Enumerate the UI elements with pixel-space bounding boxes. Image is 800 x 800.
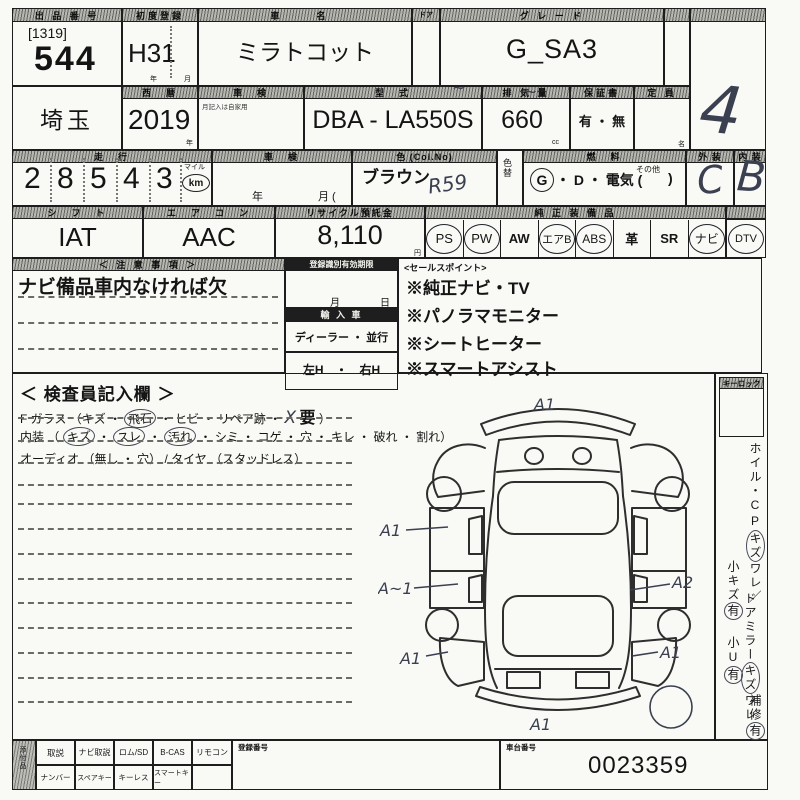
region: 埼玉 (12, 96, 122, 140)
damage-mark-left-front-door: A1 (379, 521, 401, 540)
inspector-audio-line: オーディオ （無し ・ 穴） / タイヤ （スタッドレス） (20, 450, 306, 467)
equipment-item-dtv: DTV (726, 219, 766, 258)
notes-rule (18, 348, 278, 350)
auction-hall-code: [1319] (28, 25, 67, 41)
mileage-digit-4: 4 (123, 162, 140, 196)
inspector-rule (18, 417, 352, 419)
small-scratch-circled: 有 (724, 602, 743, 620)
inspector-rule (18, 440, 352, 442)
mileage-divider (149, 158, 151, 202)
interior-circled-wear: スレ (113, 426, 146, 447)
mileage-divider (50, 158, 52, 202)
score-handwritten: 4 (696, 70, 746, 151)
left-doors (430, 508, 484, 608)
first-registration-month-unit: 月 (184, 74, 191, 84)
equipment-item-navi: ナビ (689, 220, 726, 257)
attachment-number-plate: ナンバー (36, 765, 75, 790)
grade: G_SA3 (440, 28, 664, 70)
repair-note-circled: 有 (746, 722, 765, 740)
shaken-expiry-year-label: 年 (252, 188, 263, 204)
wheel-note-text: ホイル・CP (748, 442, 762, 530)
attachment-remote: リモコン (192, 740, 232, 765)
car-damage-diagram: A1 A1 A~1 A2 A1 A1 A1 (378, 378, 716, 740)
door-cell (412, 8, 440, 86)
fuel-other-label: その他 (636, 164, 660, 175)
sales-points-header: <セールスポイント> (404, 261, 487, 274)
aircon-value: AAC (143, 220, 275, 254)
shaken-note: 月記入は自家用 (202, 101, 248, 111)
warranty-value: 有 ・ 無 (570, 104, 634, 136)
interior-circled-dirt: 汚れ (164, 426, 197, 447)
inspector-rule (18, 627, 352, 629)
glass-text: F ガラス （キズ ・ (20, 412, 121, 426)
attachment-manual: 取説 (36, 740, 75, 765)
small-dent-circled: 有 (724, 666, 743, 684)
auction-sheet: 出 品 番 号 [1319] 544 初度登録 H31 年 月 車 名 ミラトコ… (0, 0, 800, 800)
interior-circled-scratch: キズ (62, 426, 95, 447)
damage-mark-front: A1 (533, 395, 555, 414)
inspector-rule (18, 553, 352, 555)
registration-month-label: 月 (330, 294, 340, 309)
mirror-note-circled-scratch: キズ (741, 662, 760, 694)
equipment-item-pw: PW (464, 220, 502, 257)
mileage-digit-1: 2 (24, 162, 41, 196)
exterior-grade-handwritten: C (695, 157, 726, 204)
fuel-close-paren: ) (668, 170, 673, 186)
equipment-label: DTV (728, 224, 764, 254)
color-change-label: 色替 (501, 158, 514, 178)
capacity-unit: 名 (678, 139, 685, 149)
mileage-cell (12, 150, 212, 206)
import-header: 輸 入 車 (285, 308, 398, 321)
model-tilde-mark: ~ (452, 78, 465, 97)
inspector-rule (18, 701, 352, 703)
attachment-spare-key: スペアキー (75, 765, 114, 790)
small-dent-note: 小U有 (724, 636, 743, 684)
equipment-label: ABS (576, 224, 612, 254)
car-name: ミラトコット (198, 30, 412, 70)
displacement-unit: cc (552, 139, 559, 146)
sales-point-item: ※パノラマモニター (406, 302, 559, 327)
inspector-rule (18, 484, 352, 486)
notes-rule (18, 322, 278, 324)
repair-note: 補修有 (746, 694, 765, 740)
attachments-label: 添付品 (17, 746, 27, 770)
year-value: 2019 (128, 104, 190, 136)
mileage-digit-5: 3 (156, 162, 173, 196)
inspector-title: ＜ 検査員記入欄 ＞ (20, 380, 175, 405)
equipment-item-leather: 革 (614, 220, 652, 257)
attachment-empty-cell (192, 765, 232, 790)
front-bumper (481, 409, 635, 435)
damage-mark-left-quarter: A1 (399, 649, 421, 668)
attachment-rom-sd: ロム/SD (114, 740, 153, 765)
inspector-rule (18, 652, 352, 654)
equipment-item-airbag: エアB (539, 220, 577, 257)
mileage-divider (116, 158, 118, 202)
attachment-smart-key: スマートキー (153, 765, 192, 790)
notes-rule (18, 296, 278, 298)
equipment-label: SR (660, 231, 678, 246)
recycle-fee-unit: 円 (414, 248, 421, 258)
glass-text: ） (319, 412, 331, 426)
keylock-box (719, 377, 764, 437)
equipment-item-sr: SR (651, 220, 689, 257)
inspector-rule (18, 578, 352, 580)
right-doors (632, 508, 686, 608)
registration-number-box (232, 740, 500, 790)
inspector-rule (18, 528, 352, 530)
inspector-rule (18, 503, 352, 505)
chassis-number: 0023359 (588, 752, 688, 780)
equipment-label: ナビ (689, 224, 725, 254)
wheel-note-vertical: ホイル・CPキズワレ／ (746, 442, 765, 604)
equipment-label: AW (509, 231, 530, 246)
first-registration-divider (170, 26, 172, 78)
registration-number-header: 登録番号 (238, 742, 268, 753)
equipment-label: PS (426, 224, 462, 254)
rear-bumper (476, 687, 640, 710)
mileage-digit-2: 8 (57, 162, 74, 196)
small-dent-text: 小U (726, 636, 740, 666)
displacement: 660 (482, 102, 562, 138)
shaken-cell (198, 86, 304, 150)
attachment-bcas: B-CAS (153, 740, 192, 765)
first-registration-year-unit: 年 (150, 74, 157, 84)
first-registration-value: H31 (128, 38, 176, 69)
inspector-rule (18, 602, 352, 604)
attachment-navi-manual: ナビ取説 (75, 740, 114, 765)
equipment-label: PW (464, 224, 500, 254)
equipment-item-aw: AW (501, 220, 539, 257)
mileage-digit-3: 5 (90, 162, 107, 196)
glass-text: ・ ヒビ ・ リペア跡 ・ (160, 412, 281, 426)
small-scratch-text: 小キズ (726, 560, 740, 602)
model-code: DBA - LA550S (304, 102, 482, 138)
mirror-note-text: ドアミラー (743, 592, 757, 662)
fuel-gasoline-circled: G (530, 168, 554, 192)
attachment-keyless: キーレス (114, 765, 153, 790)
start-check-cell (664, 8, 690, 86)
fuel-options: ・ D ・ 電気 ( (556, 170, 642, 190)
inspector-glass-line: F ガラス （キズ ・ 飛石 ・ ヒビ ・ リペア跡 ・ X 要 ） (20, 404, 331, 428)
lot-number: 544 (34, 40, 97, 79)
dtv-header (726, 206, 766, 219)
notes-line: ナビ備品車内なければ欠 (18, 272, 227, 299)
rear-left-wheel (426, 609, 458, 641)
windshield (498, 482, 618, 534)
equipment-row: PS PW AW エアB ABS 革 SR ナビ (425, 206, 726, 258)
damage-mark-right-rear-door: A2 (671, 573, 693, 592)
shift-value: IAT (12, 220, 143, 254)
inspector-rule (18, 462, 352, 464)
equipment-item-ps: PS (426, 220, 464, 257)
wheel-note-circled-scratch: キズ (746, 530, 765, 562)
inspector-rule (18, 677, 352, 679)
color-value: ブラウン (362, 163, 430, 188)
damage-mark-left-rear-door: A~1 (378, 579, 413, 598)
year-unit: 年 (186, 138, 193, 148)
shaken-expiry-month-label: 月 ( (318, 188, 336, 204)
damage-mark-rear: A1 (529, 715, 551, 734)
equipment-item-abs: ABS (576, 220, 614, 257)
rear-window (503, 596, 613, 656)
sales-point-item: ※シートヒーター (406, 330, 542, 355)
mileage-divider (83, 158, 85, 202)
registration-day-label: 日 (380, 294, 390, 309)
mileage-km-unit: km (182, 174, 210, 192)
small-scratch-note: 小キズ有 (724, 560, 743, 620)
equipment-label: エアB (539, 224, 575, 254)
damage-mark-right-quarter: A1 (659, 643, 681, 662)
sales-point-item: ※純正ナビ・TV (406, 274, 530, 299)
mileage-mile-label: マイル (184, 162, 205, 172)
interior-grade-handwritten: B (735, 151, 767, 202)
recycle-fee-value: 8,110 (275, 218, 425, 252)
equipment-label: 革 (625, 229, 638, 248)
repair-note-text: 補修 (748, 694, 762, 722)
displacement-tilde-mark: ~ (524, 82, 537, 101)
pen-circle-mark (650, 686, 692, 728)
import-dealer-label: ディーラー ・ 並行 (285, 321, 398, 352)
chassis-number-header: 車台番号 (506, 742, 536, 753)
rear-right-wheel (658, 609, 690, 641)
